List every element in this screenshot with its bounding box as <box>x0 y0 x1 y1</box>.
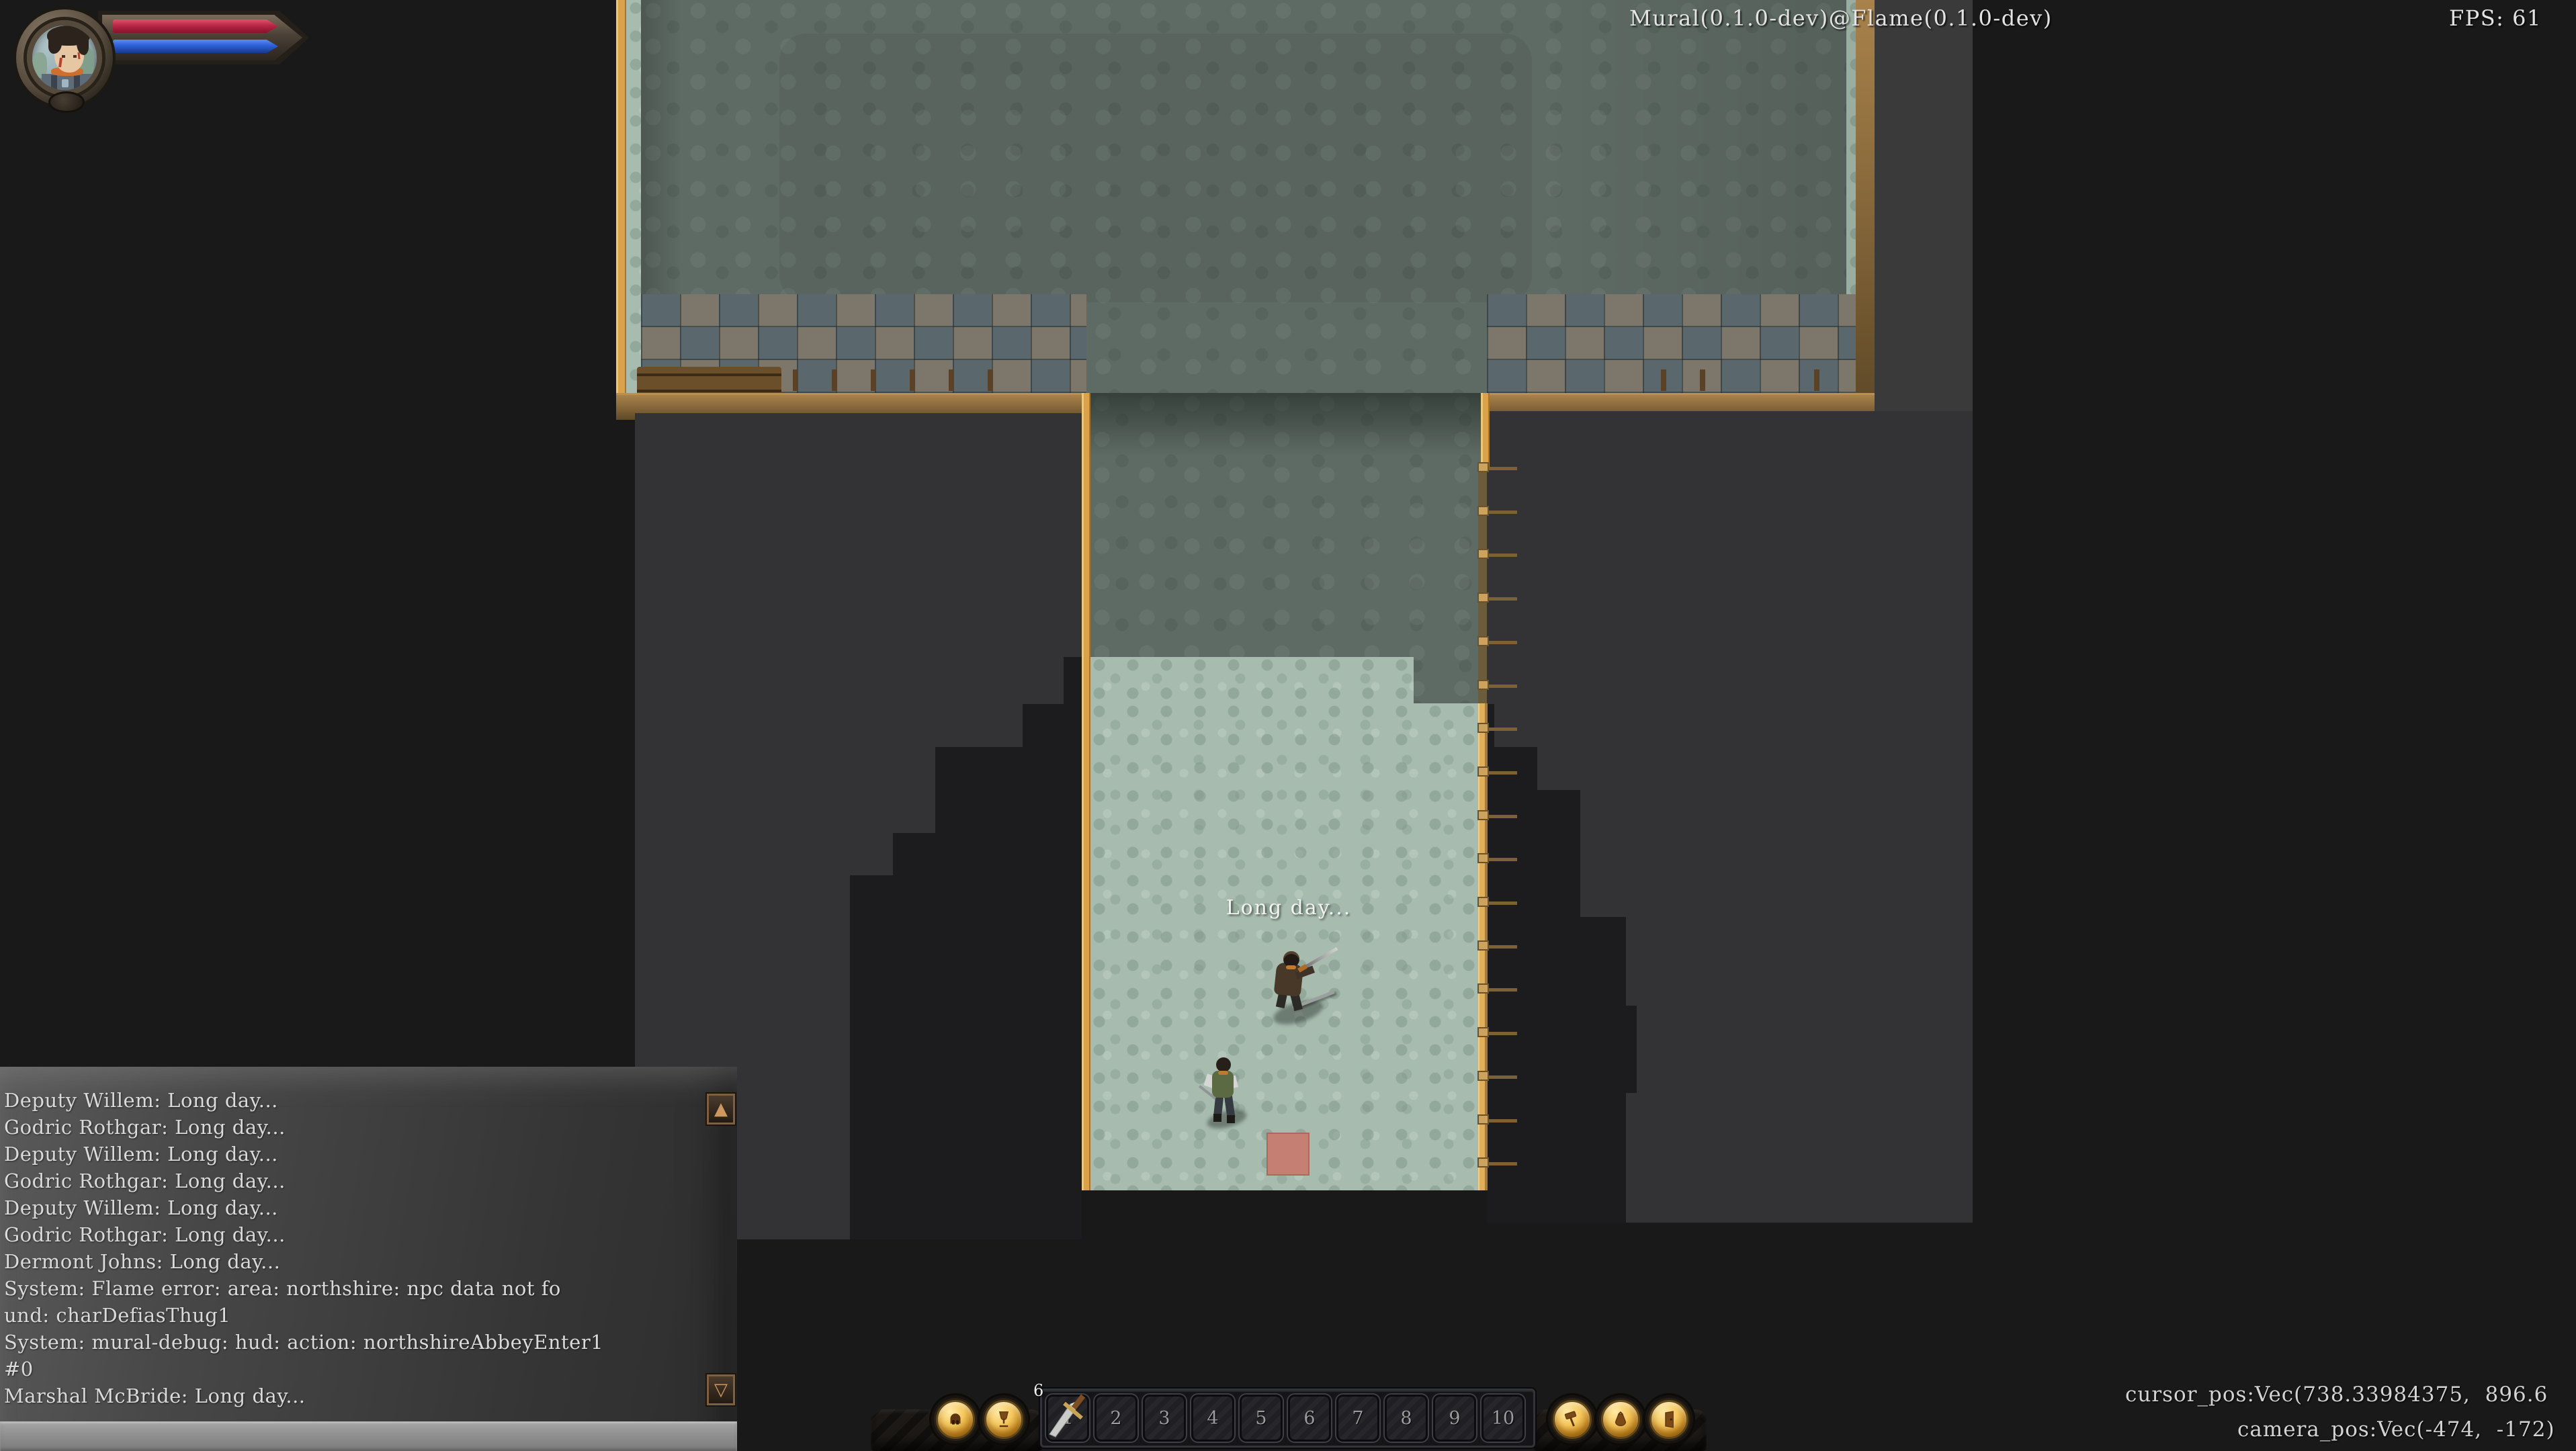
slot-number: 9 <box>1449 1408 1460 1429</box>
slot-bar: 12345678910 <box>1040 1389 1535 1448</box>
chat-line: Marshal McBride: Long day... <box>4 1382 733 1409</box>
npc-speech-text: Long day... <box>1174 896 1403 920</box>
hammer-button[interactable] <box>1553 1400 1592 1439</box>
ladder-bracket <box>1477 506 1489 516</box>
courtyard-path-upper <box>1090 657 1414 704</box>
ladder-rung <box>1487 685 1517 688</box>
slot-number: 6 <box>1303 1408 1315 1429</box>
ladder-bracket <box>1477 680 1489 690</box>
room-carpet-shade <box>779 34 1532 302</box>
bag-button[interactable] <box>1601 1400 1640 1439</box>
swordsman-npc[interactable] <box>1255 946 1329 1030</box>
player-portrait-frame[interactable] <box>5 3 312 110</box>
room-left-light-strip <box>626 0 641 393</box>
bag-icon <box>1611 1409 1631 1430</box>
ladder-bracket <box>1477 636 1489 646</box>
action-slot-6[interactable]: 6 <box>1288 1395 1331 1442</box>
corridor-right-border <box>1481 393 1490 467</box>
slot-number: 4 <box>1207 1408 1218 1429</box>
slot-number: 10 <box>1492 1408 1514 1429</box>
chat-line: Godric Rothgar: Long day... <box>4 1221 733 1248</box>
action-slot-2[interactable]: 2 <box>1094 1395 1137 1442</box>
highlight-tile <box>1266 1133 1310 1176</box>
chat-line: Deputy Willem: Long day... <box>4 1087 733 1114</box>
chat-panel: Deputy Willem: Long day...Godric Rothgar… <box>0 1067 737 1451</box>
chat-line: #0 <box>4 1356 733 1382</box>
pew-leg <box>1661 369 1666 391</box>
chat-line: Deputy Willem: Long day... <box>4 1141 733 1168</box>
mana-bar <box>113 40 278 53</box>
chat-input-bar[interactable] <box>0 1421 737 1451</box>
chat-line: Dermont Johns: Long day... <box>4 1248 733 1275</box>
slot-number: 7 <box>1352 1408 1363 1429</box>
chat-line: System: mural-debug: hud: action: norths… <box>4 1329 733 1356</box>
step-shadow <box>935 747 1023 1239</box>
step-shadow <box>1487 704 1494 1223</box>
room-right-frame <box>1856 0 1875 408</box>
ladder-rung <box>1487 641 1517 644</box>
pew-leg <box>871 369 876 391</box>
dark-wing-right-top <box>1875 0 1973 411</box>
frame-knob <box>48 91 85 113</box>
step-shadow <box>893 833 935 1239</box>
stack-count-badge: 6 <box>1033 1381 1043 1400</box>
pew-leg <box>910 369 915 391</box>
ladder-bracket <box>1477 592 1489 603</box>
door-icon <box>1659 1409 1679 1430</box>
character-button[interactable] <box>936 1400 975 1439</box>
pew-leg <box>988 369 993 391</box>
ladder-rung <box>1487 771 1517 775</box>
door-button[interactable] <box>1649 1400 1688 1439</box>
ladder-rung <box>1487 858 1517 861</box>
ladder-rung <box>1487 554 1517 557</box>
scroll-down-icon: ▽ <box>714 1380 728 1400</box>
character-icon <box>945 1409 965 1430</box>
action-slot-4[interactable]: 4 <box>1191 1395 1234 1442</box>
pew-leg <box>1814 369 1819 391</box>
chat-messages: Deputy Willem: Long day...Godric Rothgar… <box>4 1087 733 1409</box>
action-slot-1[interactable]: 1 <box>1046 1395 1089 1442</box>
ladder-bracket <box>1477 940 1489 951</box>
step-shadow <box>1023 704 1064 1239</box>
slot-number: 3 <box>1158 1408 1170 1429</box>
ladder-bracket <box>1477 810 1489 820</box>
pew-leg <box>949 369 954 391</box>
ladder-rung <box>1487 597 1517 601</box>
action-slot-10[interactable]: 10 <box>1482 1395 1525 1442</box>
step-shadow <box>1494 747 1537 1223</box>
ladder-rung <box>1487 511 1517 514</box>
corridor-door-shadow <box>1090 393 1487 474</box>
pew-leg <box>1700 369 1705 391</box>
chat-line: Deputy Willem: Long day... <box>4 1194 733 1221</box>
pew-leg <box>832 369 837 391</box>
pew-leg <box>793 369 798 391</box>
ladder-rung <box>1487 1119 1517 1123</box>
ladder-bracket <box>1477 1114 1489 1125</box>
ladder-rail-upper <box>1478 464 1487 703</box>
ladder-rung <box>1487 988 1517 992</box>
ladder-rung <box>1487 1032 1517 1035</box>
villager-npc[interactable] <box>1197 1049 1255 1134</box>
chat-line: Godric Rothgar: Long day... <box>4 1114 733 1141</box>
action-slot-3[interactable]: 3 <box>1143 1395 1186 1442</box>
path-left-border <box>1082 393 1090 1190</box>
chat-line: Godric Rothgar: Long day... <box>4 1168 733 1194</box>
ladder-rung <box>1487 1075 1517 1079</box>
ladder-bracket <box>1477 1027 1489 1037</box>
ladder-bracket <box>1477 1157 1489 1168</box>
game-viewport: Long day... Mural(0.1.0-dev)@Fla <box>0 0 2576 1451</box>
ladder-bracket <box>1477 897 1489 907</box>
player-avatar <box>27 20 102 95</box>
pew-bench <box>637 367 781 396</box>
slot-number: 2 <box>1110 1408 1121 1429</box>
slot-number: 8 <box>1400 1408 1412 1429</box>
hammer-icon <box>1562 1409 1582 1430</box>
action-slot-5[interactable]: 5 <box>1240 1395 1283 1442</box>
build-title: Mural(0.1.0-dev)@Flame(0.1.0-dev) <box>1629 5 2053 31</box>
step-shadow <box>1537 790 1580 1223</box>
step-shadow <box>850 875 893 1239</box>
health-bar <box>113 19 278 33</box>
ladder-rung <box>1487 815 1517 818</box>
ladder-rung <box>1487 902 1517 905</box>
step-shadow <box>1580 917 1626 1223</box>
ladder-bracket <box>1477 462 1489 472</box>
ladder-bracket <box>1477 549 1489 559</box>
step-shadow <box>1064 657 1082 1239</box>
goblet-icon <box>994 1409 1014 1430</box>
scroll-up-icon: ▲ <box>714 1099 728 1119</box>
ladder-bracket <box>1477 723 1489 733</box>
step-shadow <box>1626 1006 1637 1093</box>
ladder-bracket <box>1477 1071 1489 1081</box>
slot-number: 5 <box>1255 1408 1266 1429</box>
action-slot-7[interactable]: 7 <box>1336 1395 1379 1442</box>
chat-line: System: Flame error: area: northshire: n… <box>4 1275 733 1302</box>
sword-icon <box>1045 1394 1088 1440</box>
ladder-bracket <box>1477 983 1489 994</box>
chat-scroll-up-button[interactable]: ▲ <box>707 1094 735 1125</box>
chat-scroll-down-button[interactable]: ▽ <box>707 1374 735 1405</box>
ladder-bracket <box>1477 853 1489 863</box>
room-left-border <box>616 0 626 420</box>
ladder-rung <box>1487 728 1517 731</box>
chat-line: und: charDefiasThug1 <box>4 1302 733 1329</box>
ladder-rung <box>1487 945 1517 949</box>
checker-wall-right <box>1487 294 1856 393</box>
action-slot-8[interactable]: 8 <box>1385 1395 1428 1442</box>
action-slot-9[interactable]: 9 <box>1433 1395 1476 1442</box>
ladder-bracket <box>1477 766 1489 777</box>
ladder-rung <box>1487 467 1517 470</box>
fps-counter: FPS: 61 <box>2449 5 2542 31</box>
camera-pos-text: camera_pos:Vec(-474, -172) <box>2237 1417 2555 1442</box>
ladder-rung <box>1487 1162 1517 1166</box>
cursor-pos-text: cursor_pos:Vec(738.33984375, 896.6 <box>2125 1382 2548 1407</box>
goblet-button[interactable] <box>984 1400 1023 1439</box>
